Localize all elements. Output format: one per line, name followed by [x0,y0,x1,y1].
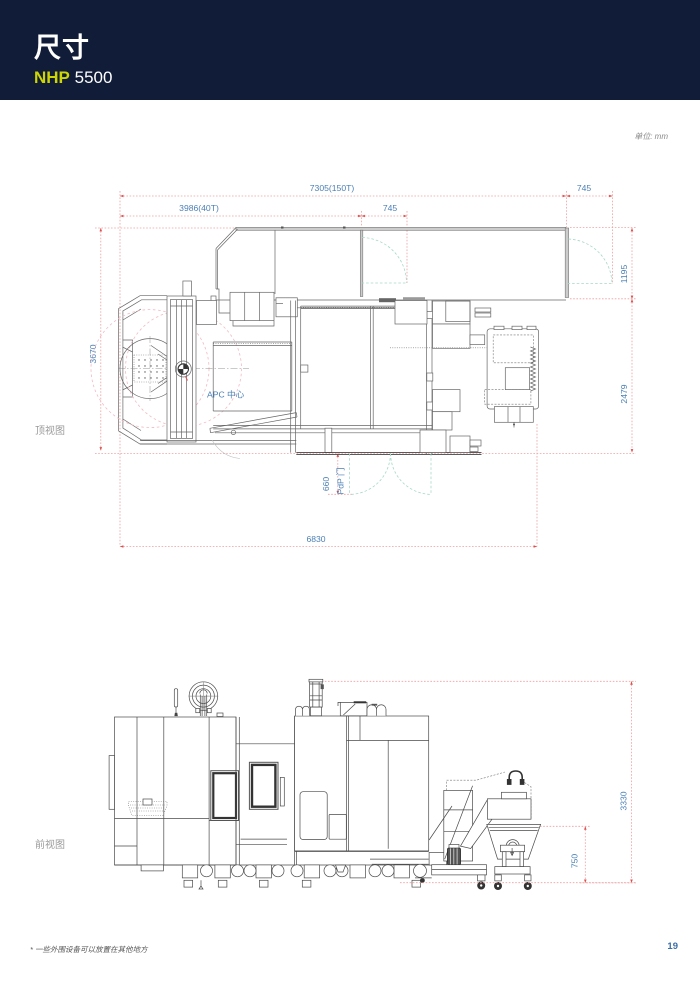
svg-text:1195: 1195 [619,265,629,284]
svg-text:745: 745 [577,183,592,193]
svg-text:3986(40T): 3986(40T) [179,203,219,213]
svg-text:750: 750 [570,854,580,869]
svg-text:6830: 6830 [306,534,325,544]
svg-text:PdP 门: PdP 门 [335,467,346,494]
svg-text:APC 中心: APC 中心 [207,389,245,400]
svg-text:7305(150T): 7305(150T) [310,183,355,193]
svg-text:2479: 2479 [619,384,629,403]
svg-text:3330: 3330 [619,791,629,810]
svg-text:660: 660 [321,477,331,492]
svg-text:745: 745 [383,203,398,213]
